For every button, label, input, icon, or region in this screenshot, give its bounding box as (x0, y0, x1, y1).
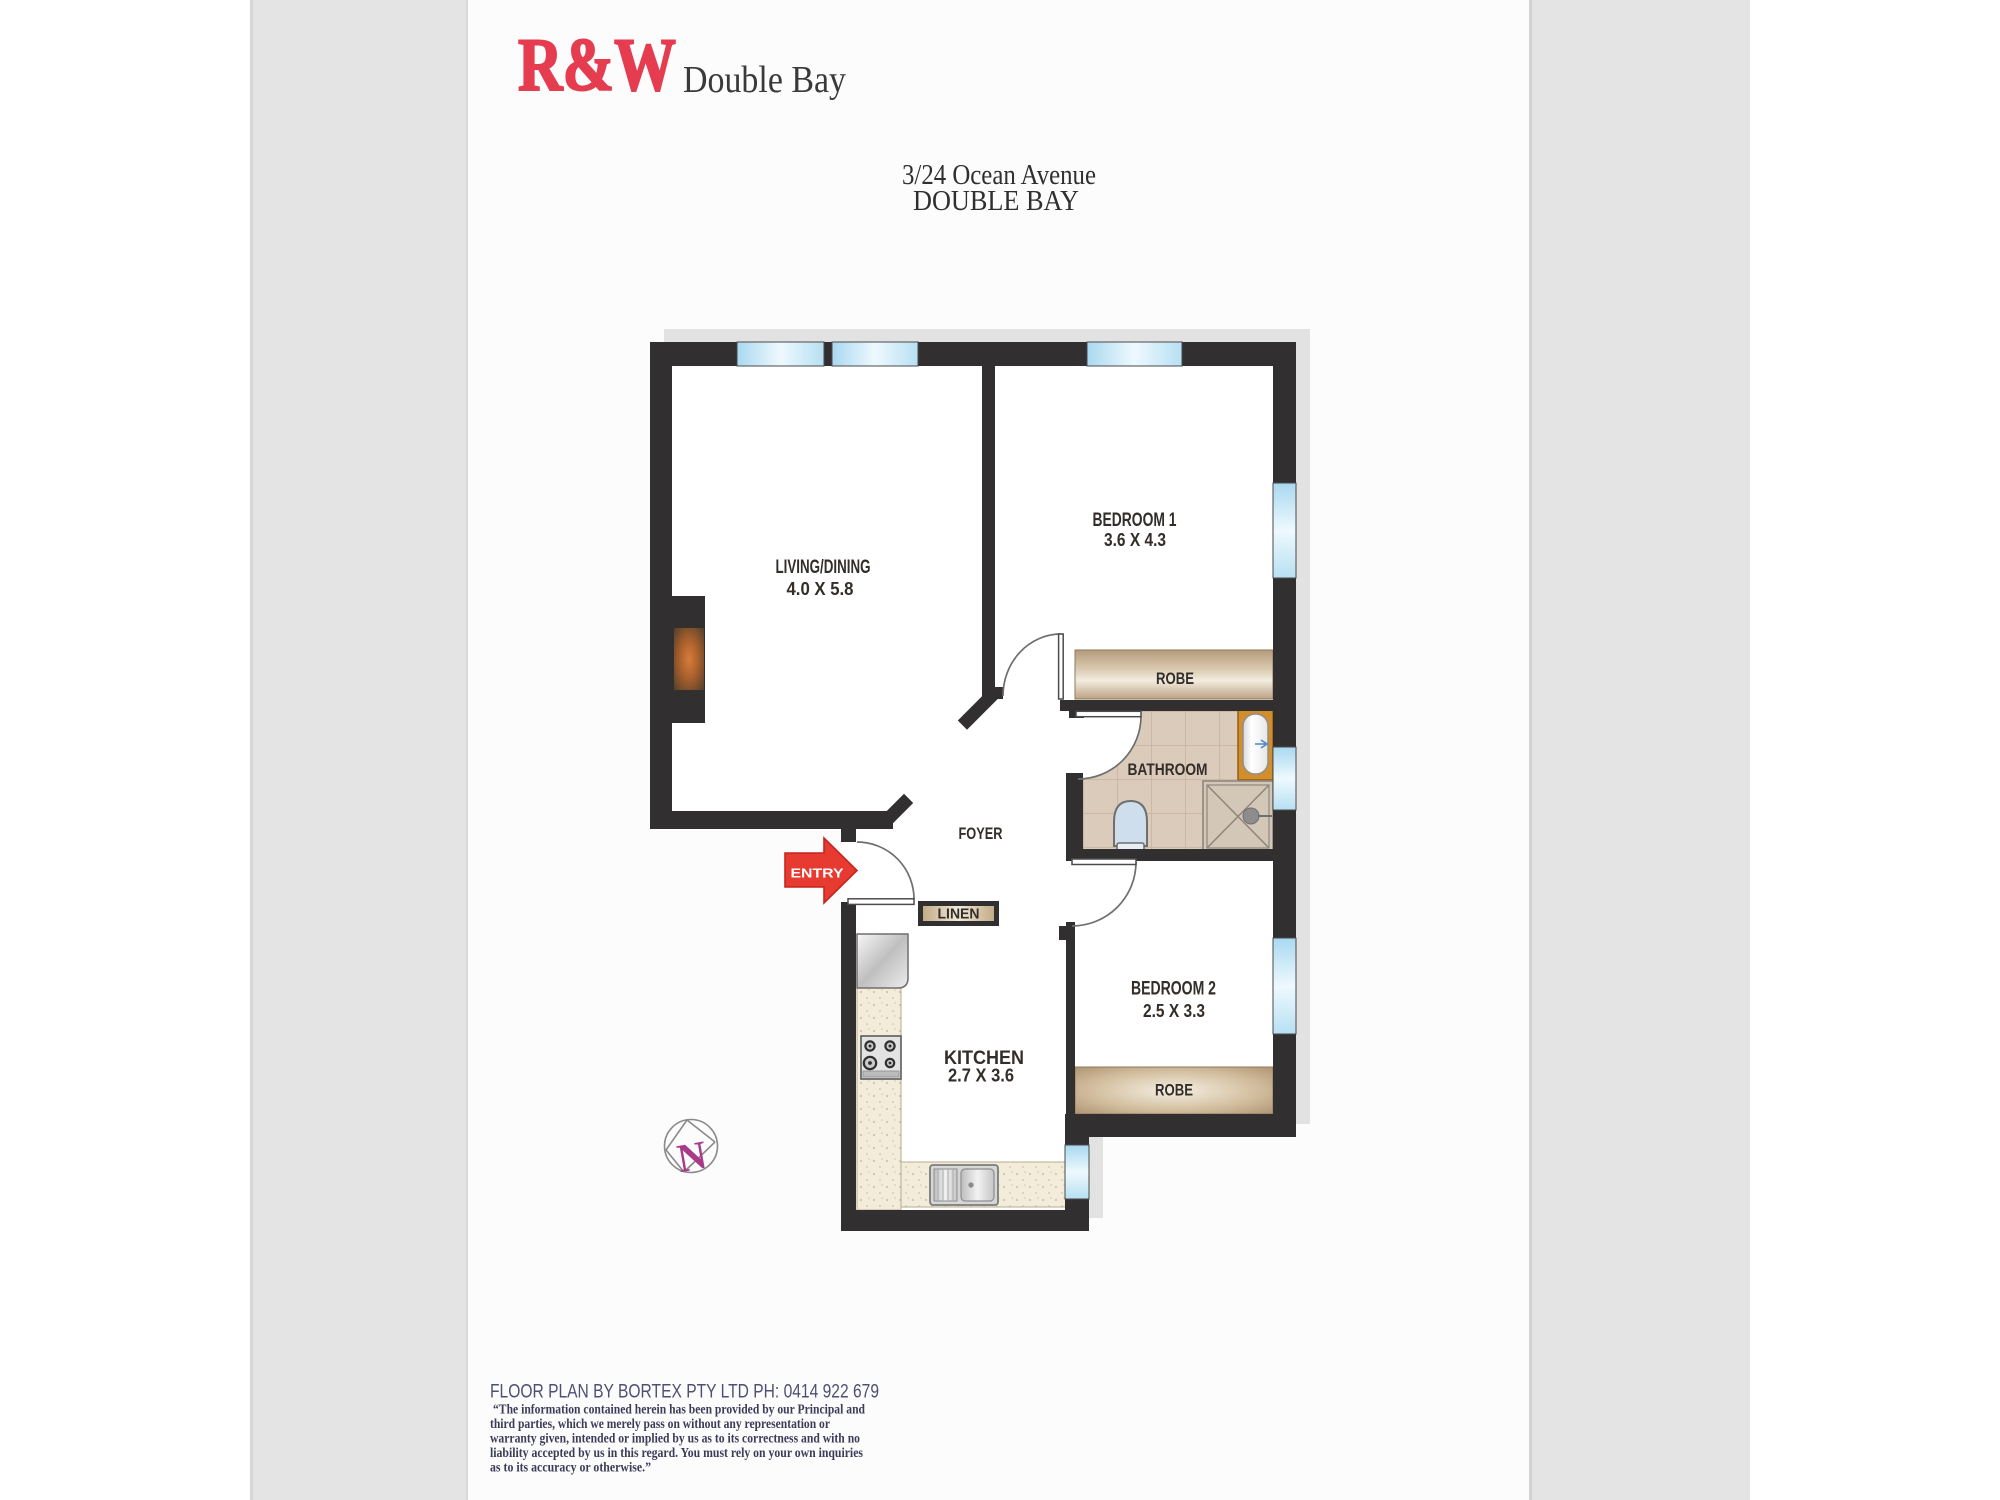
svg-text:BEDROOM 1: BEDROOM 1 (1093, 510, 1177, 531)
svg-text:ENTRY: ENTRY (791, 867, 845, 881)
svg-text:LINEN: LINEN (938, 907, 980, 923)
svg-text:BEDROOM 2: BEDROOM 2 (1131, 979, 1216, 1000)
svg-text:4.0 X 5.8: 4.0 X 5.8 (787, 578, 854, 599)
svg-text:R&W: R&W (518, 24, 676, 107)
svg-text:BATHROOM: BATHROOM (1128, 760, 1208, 779)
svg-text:as to its accuracy or otherwis: as to its accuracy or otherwise.” (490, 1461, 651, 1476)
svg-text:FOYER: FOYER (959, 824, 1003, 843)
svg-text:third parties, which we merely: third parties, which we merely pass on w… (490, 1417, 830, 1432)
svg-text:warranty given, intended or im: warranty given, intended or implied by u… (490, 1432, 860, 1447)
svg-text:FLOOR PLAN BY BORTEX PTY LTD P: FLOOR PLAN BY BORTEX PTY LTD PH: 0414 92… (490, 1381, 879, 1403)
svg-text:liability accepted by us in th: liability accepted by us in this regard.… (490, 1446, 863, 1461)
svg-text:3.6 X 4.3: 3.6 X 4.3 (1104, 529, 1166, 550)
svg-text:2.7 X 3.6: 2.7 X 3.6 (948, 1065, 1014, 1086)
svg-text:ROBE: ROBE (1156, 669, 1194, 688)
svg-text:“The information contained her: “The information contained herein has be… (493, 1403, 865, 1418)
svg-text:ROBE: ROBE (1155, 1081, 1193, 1100)
svg-text:LIVING/DINING: LIVING/DINING (776, 557, 871, 578)
svg-text:DOUBLE BAY: DOUBLE BAY (913, 186, 1079, 217)
svg-text:2.5 X 3.3: 2.5 X 3.3 (1143, 1000, 1205, 1021)
svg-text:Double Bay: Double Bay (683, 59, 846, 101)
